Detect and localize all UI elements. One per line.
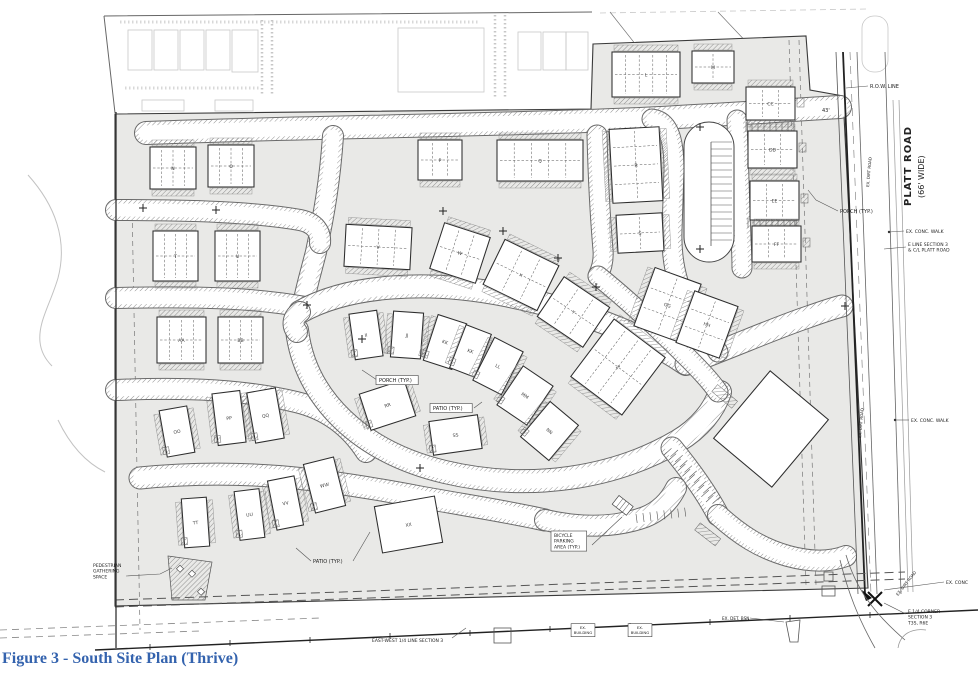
building-ii: II [343,309,389,360]
building-label: BB [237,338,243,344]
building-xx: XX [374,496,442,553]
building-r: R [602,126,670,203]
building-label: M [711,65,715,71]
parking-loop [684,122,734,262]
building-ff: FF [752,219,801,269]
building-label: S [638,231,641,237]
building-label: N [171,166,174,172]
building-qq: QQ [241,387,290,444]
building-cc: CC [746,80,795,127]
ex-conc-bottom: EX. CONC [884,580,968,590]
ex-conc-walk-2: EX. CONC. WALK [894,418,950,424]
svg-text:EX. CONC: EX. CONC [946,580,968,586]
svg-text:PLATT ROAD: PLATT ROAD [903,126,914,206]
svg-text:EX. CONC. WALK: EX. CONC. WALK [906,229,945,235]
building-dd: DD [748,124,797,175]
svg-text:R.O.W. LINE: R.O.W. LINE [870,84,899,90]
building-label: JJ [404,333,408,339]
site-plan-page: NOTUAABBPQLMRSCCDDEEFFVWXYZGGHHIIJJKKKKL… [0,0,978,677]
building-oo: OO [153,405,201,458]
building-tt: TT [175,497,215,548]
building-label: EE [772,198,778,204]
svg-text:(66' WIDE): (66' WIDE) [917,155,926,198]
building-label: T [173,254,177,260]
north-boundary-line [104,12,592,113]
svg-text:EX. DIRT ROAD: EX. DIRT ROAD [895,570,917,597]
building-label: XX [405,522,412,529]
ex-building-2: EX.BUILDING [628,624,652,637]
building-l: L [612,45,680,104]
dim-43: 43' [822,108,830,114]
ex-dirt-road-3: EX. DIRT ROAD [895,570,917,597]
building-label: DD [769,147,777,153]
building-u: U [215,224,260,288]
platt-road-width: (66' WIDE) [917,155,926,198]
svg-text:EX. DIRT ROAD: EX. DIRT ROAD [865,157,873,187]
building-o: O [208,138,254,194]
building-label: O [229,164,233,170]
building-q: Q [497,133,583,188]
building-aa: AA [157,310,206,370]
building-bb: BB [218,310,263,370]
svg-text:PATIO (TYP.): PATIO (TYP.) [433,406,463,412]
building-v: V [344,217,413,276]
svg-text:EAST-WEST 1/4 LINE SECTION 3: EAST-WEST 1/4 LINE SECTION 3 [372,638,443,644]
svg-text:PATIO (TYP.): PATIO (TYP.) [313,559,343,565]
ex-building-1: EX.BUILDING [571,624,595,637]
building-label: U [236,254,239,260]
building-label: FF [774,242,780,248]
building-t: T [153,224,198,288]
svg-text:E 1/4 CORNERSECTION 3T3S, R6E: E 1/4 CORNERSECTION 3T3S, R6E [907,609,940,626]
svg-text:E LINE SECTION 3& C/L PLATT RO: E LINE SECTION 3& C/L PLATT ROAD [908,242,950,254]
svg-text:43': 43' [822,108,830,114]
building-label: L [645,72,648,78]
building-label: P [439,158,442,164]
building-s: S [609,212,671,253]
building-p: P [418,133,462,187]
site-plan-drawing: NOTUAABBPQLMRSCCDDEEFFVWXYZGGHHIIJJKKKKL… [0,0,978,652]
ex-conc-walk-1: EX. CONC. WALK [888,229,945,235]
e-quarter-corner: E 1/4 CORNERSECTION 3T3S, R6E [884,603,940,626]
building-label: SS [452,432,459,439]
building-label: CC [767,101,773,107]
svg-text:PORCH (TYP.): PORCH (TYP.) [379,378,412,384]
platt-road-name: PLATT ROAD [903,126,914,206]
ex-dirt-road-1: EX. DIRT ROAD [865,157,873,187]
building-label: TT [192,520,199,526]
svg-text:EX. CONC. WALK: EX. CONC. WALK [911,418,950,424]
building-label: UU [246,512,253,519]
building-label: AA [178,338,185,344]
building-label: Q [538,158,542,164]
figure-caption: Figure 3 - South Site Plan (Thrive) [2,650,976,668]
offsite-contours [28,175,105,472]
building-m: M [692,44,734,90]
svg-text:EX. DET. BSN: EX. DET. BSN [722,616,749,621]
svg-text:PORCH (TYP.): PORCH (TYP.) [840,209,873,215]
e-line-section: E LINE SECTION 3& C/L PLATT ROAD [884,242,950,254]
row-line-label: R.O.W. LINE [846,84,899,90]
building-n: N [150,140,196,196]
building-label: PP [226,415,232,422]
